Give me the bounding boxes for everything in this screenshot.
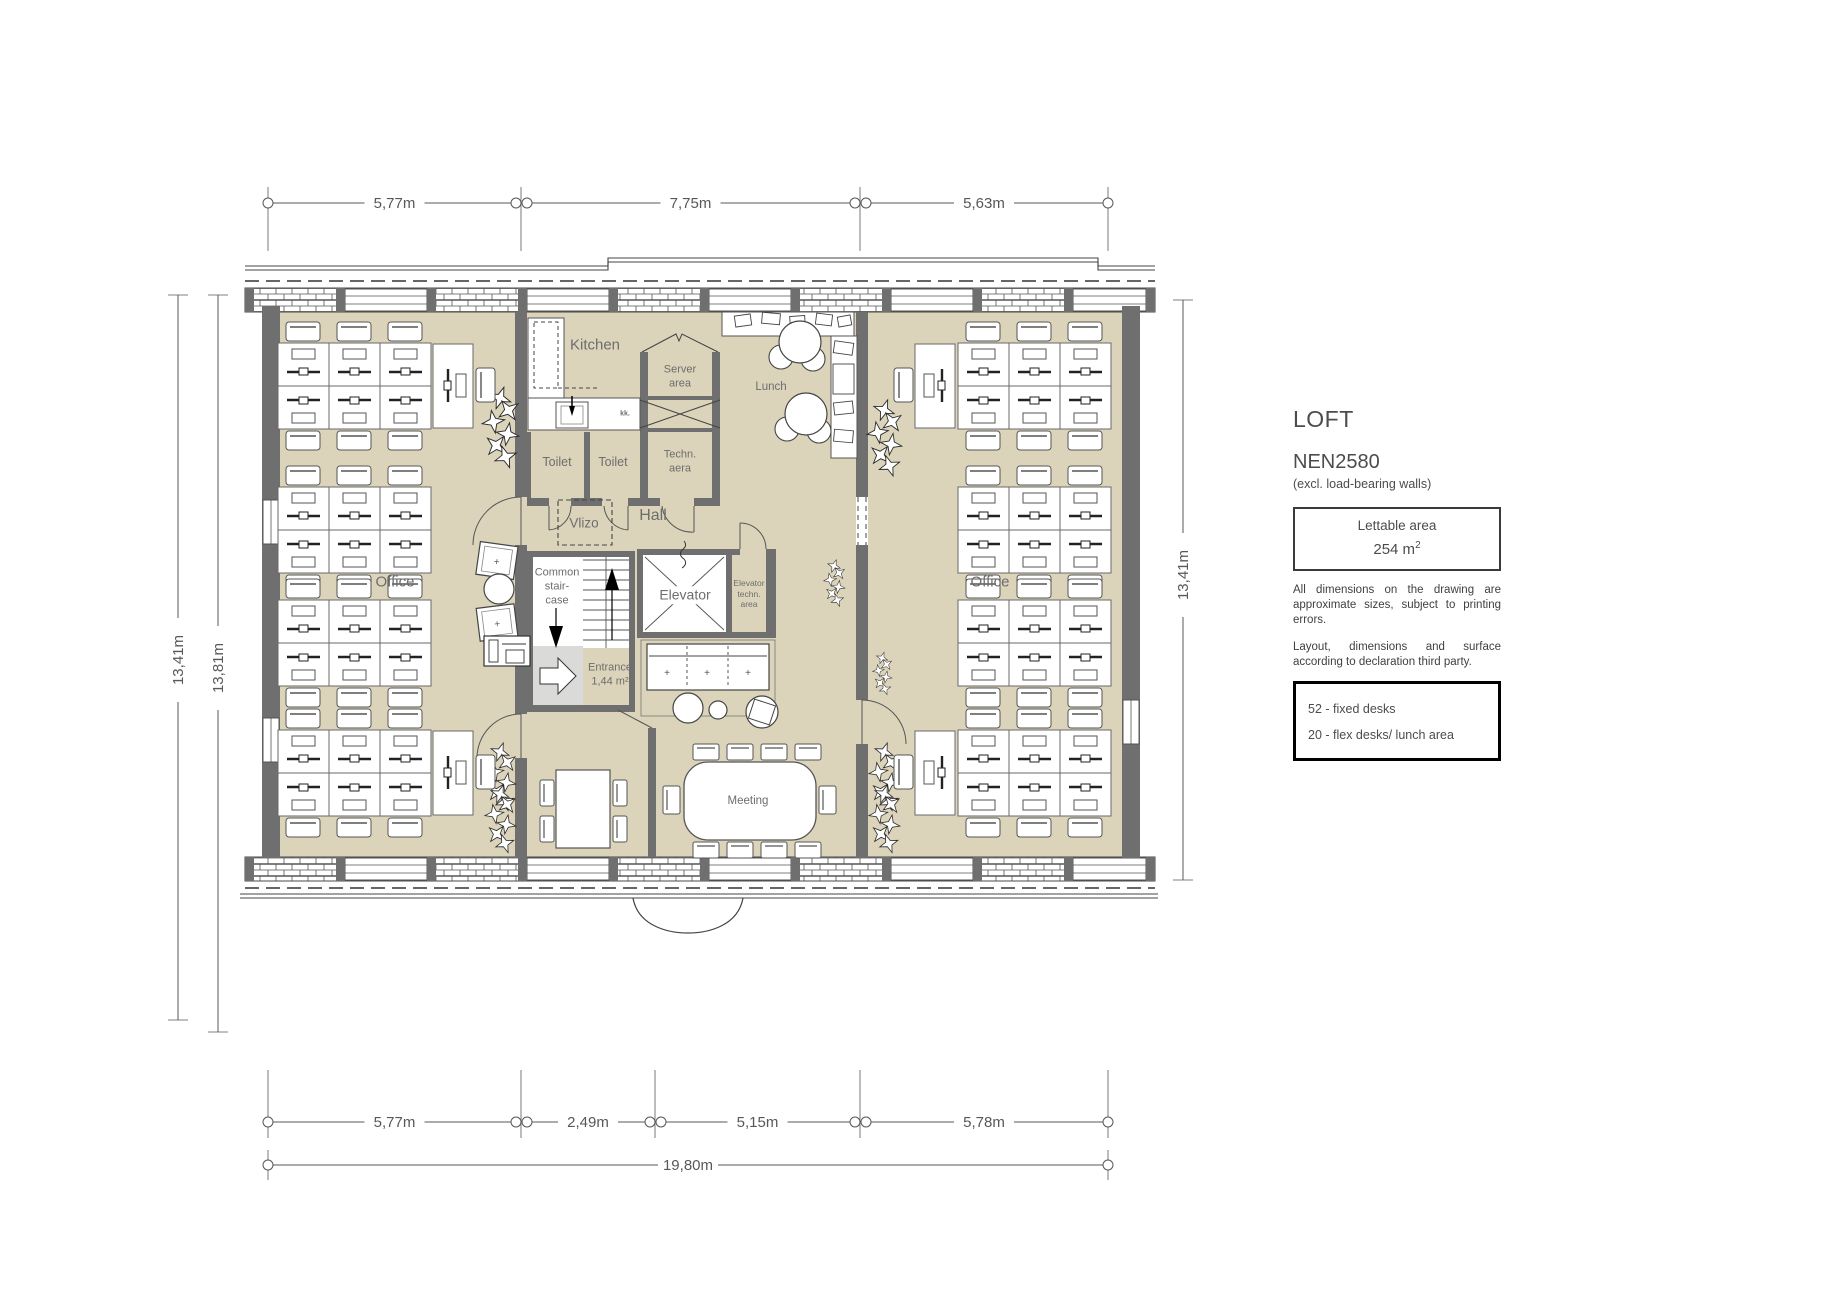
chair: [894, 755, 913, 789]
interior-wall: [637, 555, 643, 638]
desk-keyboard: [394, 670, 417, 680]
desk-keyboard: [1023, 557, 1046, 567]
small-table: [556, 770, 610, 848]
chair: [966, 818, 1000, 837]
desk-monitor-base: [1030, 625, 1039, 632]
wall-pier: [791, 288, 800, 312]
entrance-bay-arc: [633, 898, 743, 933]
desk-monitor-base: [979, 654, 988, 661]
wall-pier: [427, 857, 436, 881]
dim-bottom-label: 5,78m: [963, 1114, 1005, 1131]
dim-top-marker: [1103, 198, 1113, 208]
printer-detail: [489, 640, 498, 662]
desk-keyboard: [292, 413, 315, 423]
dim-top-marker: [861, 198, 871, 208]
desk: [915, 731, 955, 815]
chair: [966, 709, 1000, 728]
dim-bottom-marker: [263, 1117, 273, 1127]
desk-keyboard: [1023, 493, 1046, 503]
wall-pier: [1064, 288, 1073, 312]
wall-pier: [518, 288, 527, 312]
desk-monitor-base: [299, 625, 308, 632]
chair: [1017, 818, 1051, 837]
chair: [894, 368, 913, 402]
desk-monitor-base: [938, 381, 945, 390]
dim-bottom-marker: [522, 1117, 532, 1127]
chair: [286, 431, 320, 450]
chair: [1017, 431, 1051, 450]
desk-keyboard: [394, 493, 417, 503]
desk-keyboard: [343, 800, 366, 810]
desk-keyboard: [394, 557, 417, 567]
desk-keyboard: [343, 670, 366, 680]
desk-monitor-base: [299, 541, 308, 548]
counter-item: [833, 341, 853, 356]
lettable-value-sup: 2: [1415, 540, 1421, 551]
desk-monitor-base: [1081, 784, 1090, 791]
wall-pier: [700, 288, 709, 312]
chair: [1017, 579, 1051, 598]
floor-plan-drawing: +++++5,77m7,75m5,63m5,77m2,49m5,15m5,78m…: [0, 0, 1841, 1294]
chair: [966, 322, 1000, 341]
desk-keyboard: [1023, 413, 1046, 423]
interior-wall: [515, 703, 527, 714]
interior-wall: [856, 312, 868, 497]
dim-left-inner-label: 13,81m: [210, 643, 227, 693]
plus-mark: +: [664, 668, 670, 679]
desk-keyboard: [292, 800, 315, 810]
chair: [795, 842, 821, 858]
interior-wall: [527, 498, 549, 506]
chair: [286, 579, 320, 598]
interior-wall: [856, 545, 868, 700]
wall-pier: [973, 857, 982, 881]
desk-keyboard: [343, 413, 366, 423]
chair: [337, 431, 371, 450]
desk-keyboard: [394, 606, 417, 616]
wall-pier: [973, 288, 982, 312]
desk-monitor-base: [299, 755, 308, 762]
dim-overall-marker: [263, 1160, 273, 1170]
chair: [1068, 818, 1102, 837]
chair: [337, 688, 371, 707]
chair: [693, 842, 719, 858]
desk-monitor-base: [401, 512, 410, 519]
interior-wall: [571, 498, 602, 506]
desk-monitor-base: [1030, 755, 1039, 762]
desk-monitor-base: [1081, 755, 1090, 762]
desk-monitor-base: [1030, 541, 1039, 548]
wall-pier: [882, 857, 891, 881]
chair: [337, 818, 371, 837]
desk-keyboard: [394, 800, 417, 810]
chair: [1017, 709, 1051, 728]
desk-monitor-base: [979, 755, 988, 762]
facade-window: [345, 289, 427, 311]
chair: [1068, 579, 1102, 598]
dim-top-marker: [263, 198, 273, 208]
disclaimer-1: All dimensions on the drawing are approx…: [1293, 583, 1501, 629]
chair: [1017, 322, 1051, 341]
chair: [1017, 466, 1051, 485]
desk-keyboard: [394, 736, 417, 746]
chair: [966, 688, 1000, 707]
chair: [286, 466, 320, 485]
facade-window: [891, 858, 973, 880]
desk-monitor-base: [1081, 541, 1090, 548]
facade-window: [891, 289, 973, 311]
lounge-table: [484, 574, 514, 604]
dim-bottom-marker: [645, 1117, 655, 1127]
dim-top-marker: [511, 198, 521, 208]
desk-monitor-base: [979, 541, 988, 548]
desk-monitor-base: [979, 397, 988, 404]
desk-keyboard: [456, 374, 466, 397]
desk-keyboard: [1023, 670, 1046, 680]
wall-pier: [336, 857, 345, 881]
counter-item: [815, 313, 832, 326]
flex-desks-line: 20 - flex desks/ lunch area: [1308, 728, 1486, 742]
desk-monitor-base: [938, 768, 945, 777]
desk-keyboard: [292, 557, 315, 567]
wall-pier: [609, 857, 618, 881]
counter-item: [833, 401, 853, 415]
dim-left-outer-label: 13,41m: [170, 635, 187, 685]
dim-bottom-label: 5,15m: [737, 1114, 779, 1131]
interior-wall: [712, 352, 720, 498]
desk-keyboard: [924, 374, 934, 397]
chair: [286, 688, 320, 707]
interior-wall: [527, 432, 531, 498]
desk-keyboard: [1023, 736, 1046, 746]
desk-monitor-base: [350, 784, 359, 791]
interior-wall: [694, 498, 720, 506]
desk-keyboard: [292, 736, 315, 746]
desk-monitor-base: [401, 541, 410, 548]
desk-monitor-base: [1081, 368, 1090, 375]
desk-monitor-base: [1030, 784, 1039, 791]
dim-overall-label: 19,80m: [663, 1157, 713, 1174]
interior-wall: [726, 555, 732, 638]
desk: [915, 344, 955, 428]
right-wall: [1122, 306, 1140, 858]
chair: [286, 818, 320, 837]
desk-monitor-base: [1081, 512, 1090, 519]
fixed-desks-line: 52 - fixed desks: [1308, 702, 1486, 716]
desk-keyboard: [1074, 670, 1097, 680]
dim-bottom-label: 5,77m: [374, 1114, 416, 1131]
desk: [433, 344, 473, 428]
chair: [663, 786, 680, 814]
desk-monitor-base: [444, 768, 451, 777]
dim-top-marker: [850, 198, 860, 208]
chair: [693, 744, 719, 760]
desk-monitor-base: [401, 625, 410, 632]
plus-mark: +: [704, 668, 710, 679]
desk-keyboard: [972, 349, 995, 359]
chair: [286, 322, 320, 341]
legend-panel: LOFT NEN2580 (excl. load-bearing walls) …: [1293, 406, 1501, 761]
desk-keyboard: [972, 557, 995, 567]
desk-keyboard: [972, 670, 995, 680]
desk-keyboard: [972, 493, 995, 503]
chair: [388, 579, 422, 598]
chair: [286, 709, 320, 728]
desk-monitor-base: [979, 368, 988, 375]
desk-keyboard: [1074, 413, 1097, 423]
chair: [761, 842, 787, 858]
chair: [761, 744, 787, 760]
legend-title: LOFT: [1293, 406, 1501, 433]
desk-monitor-base: [1081, 397, 1090, 404]
desk-monitor-base: [1030, 368, 1039, 375]
facade-window: [1073, 858, 1146, 880]
chair: [1068, 466, 1102, 485]
disclaimer-2: Layout, dimensions and surface according…: [1293, 640, 1501, 670]
desk-keyboard: [1023, 349, 1046, 359]
wall-pier: [700, 857, 709, 881]
chair: [819, 786, 836, 814]
dim-bottom-label: 2,49m: [567, 1114, 609, 1131]
interior-wall: [640, 428, 720, 432]
lunch-table: [779, 321, 821, 363]
chair: [1068, 322, 1102, 341]
coffee-table: [673, 693, 703, 723]
interior-wall: [640, 396, 720, 400]
desk-monitor-base: [299, 368, 308, 375]
chair: [388, 818, 422, 837]
counter-item: [734, 314, 751, 327]
chair: [337, 579, 371, 598]
desk-monitor-base: [979, 784, 988, 791]
desk-keyboard: [343, 606, 366, 616]
desk-monitor-base: [401, 755, 410, 762]
dim-top-label: 7,75m: [670, 195, 712, 212]
desk-keyboard: [1074, 349, 1097, 359]
interior-wall: [629, 557, 635, 705]
wall-pier: [245, 857, 254, 881]
chair: [966, 431, 1000, 450]
desk-keyboard: [972, 413, 995, 423]
chair: [966, 579, 1000, 598]
desk-keyboard: [972, 606, 995, 616]
sofa: [647, 644, 769, 690]
facade-window: [527, 289, 609, 311]
printer-detail: [506, 650, 524, 663]
desk-keyboard: [394, 349, 417, 359]
dim-overall-marker: [1103, 1160, 1113, 1170]
legend-note: (excl. load-bearing walls): [1293, 477, 1501, 491]
desk-count-box: 52 - fixed desks 20 - flex desks/ lunch …: [1293, 681, 1501, 761]
dim-top-label: 5,63m: [963, 195, 1005, 212]
interior-wall: [628, 498, 640, 506]
desk-monitor-base: [401, 784, 410, 791]
chair: [727, 744, 753, 760]
desk-keyboard: [343, 736, 366, 746]
counter-item: [834, 429, 854, 443]
chair: [727, 842, 753, 858]
interior-wall: [515, 758, 527, 858]
facade-window: [709, 858, 791, 880]
desk-keyboard: [456, 761, 466, 784]
interior-wall: [640, 352, 648, 498]
dim-bottom-marker: [861, 1117, 871, 1127]
desk: [433, 731, 473, 815]
desk-keyboard: [292, 493, 315, 503]
desk-keyboard: [343, 493, 366, 503]
desk-monitor-base: [299, 512, 308, 519]
interior-wall: [640, 498, 660, 506]
lettable-area-box: Lettable area 254 m2: [1293, 507, 1501, 571]
chair: [613, 816, 627, 842]
desk-monitor-base: [444, 381, 451, 390]
interior-wall: [766, 549, 776, 555]
desk-monitor-base: [299, 784, 308, 791]
desk-keyboard: [924, 761, 934, 784]
floor-plan: +++++5,77m7,75m5,63m5,77m2,49m5,15m5,78m…: [0, 0, 1841, 1294]
facade-window: [527, 858, 609, 880]
desk-monitor-base: [401, 368, 410, 375]
desk-monitor-base: [1030, 397, 1039, 404]
desk-keyboard: [292, 670, 315, 680]
interior-wall: [584, 432, 590, 498]
chair: [337, 322, 371, 341]
left-wall: [262, 306, 280, 858]
counter-item: [837, 315, 852, 327]
desk-monitor-base: [299, 654, 308, 661]
wall-pier: [791, 857, 800, 881]
meeting-table: [684, 762, 816, 840]
chair: [476, 368, 495, 402]
desk-monitor-base: [350, 541, 359, 548]
dim-right-label: 13,41m: [1175, 550, 1192, 600]
interior-wall: [637, 549, 740, 555]
facade-window: [709, 289, 791, 311]
legend-subtitle: NEN2580: [1293, 451, 1501, 474]
dim-bottom-marker: [511, 1117, 521, 1127]
counter-item: [833, 364, 854, 394]
interior-wall: [637, 632, 776, 638]
lunch-table: [785, 393, 827, 435]
dim-top-label: 5,77m: [374, 195, 416, 212]
facade-window: [345, 858, 427, 880]
desk-monitor-base: [350, 654, 359, 661]
interior-wall: [766, 555, 776, 638]
interior-wall: [856, 744, 868, 858]
dim-bottom-marker: [850, 1117, 860, 1127]
lettable-value-text: 254 m: [1373, 541, 1415, 558]
desk-monitor-base: [350, 755, 359, 762]
interior-wall: [527, 551, 635, 557]
chair: [388, 322, 422, 341]
desk-keyboard: [972, 800, 995, 810]
wall-pier: [1064, 857, 1073, 881]
desk-keyboard: [343, 349, 366, 359]
desk-monitor-base: [1081, 654, 1090, 661]
desk-monitor-base: [1030, 654, 1039, 661]
chair: [388, 688, 422, 707]
wall-pier: [1146, 288, 1155, 312]
lettable-area-label: Lettable area: [1295, 518, 1499, 533]
desk-keyboard: [1074, 606, 1097, 616]
desk-monitor-base: [350, 512, 359, 519]
desk-monitor-base: [1081, 625, 1090, 632]
chair: [476, 755, 495, 789]
chair: [1068, 709, 1102, 728]
wall-pier: [336, 288, 345, 312]
dim-top-marker: [522, 198, 532, 208]
chair: [795, 744, 821, 760]
desk-monitor-base: [1030, 512, 1039, 519]
desk-monitor-base: [350, 397, 359, 404]
desk-keyboard: [343, 557, 366, 567]
chair: [388, 466, 422, 485]
desk-keyboard: [1074, 736, 1097, 746]
desk-monitor-base: [401, 654, 410, 661]
dim-bottom-marker: [656, 1117, 666, 1127]
desk-keyboard: [1023, 800, 1046, 810]
desk-keyboard: [1023, 606, 1046, 616]
desk-monitor-base: [350, 625, 359, 632]
chair: [540, 780, 554, 806]
wall-pier: [518, 857, 527, 881]
interior-wall: [527, 557, 533, 705]
chair: [966, 466, 1000, 485]
coffee-table: [709, 701, 727, 719]
chair: [540, 816, 554, 842]
interior-wall: [648, 728, 656, 857]
desk-monitor-base: [401, 397, 410, 404]
desk-keyboard: [1074, 800, 1097, 810]
wall-pier: [427, 288, 436, 312]
desk-keyboard: [292, 606, 315, 616]
chair: [337, 466, 371, 485]
wall-pier: [882, 288, 891, 312]
counter-item: [762, 312, 781, 325]
chair: [1017, 688, 1051, 707]
lettable-area-value: 254 m2: [1295, 540, 1499, 558]
chair: [388, 709, 422, 728]
chair: [337, 709, 371, 728]
chair: [613, 780, 627, 806]
chair: [1068, 431, 1102, 450]
desk-keyboard: [972, 736, 995, 746]
desk-monitor-base: [350, 368, 359, 375]
chair: [388, 431, 422, 450]
desk-keyboard: [394, 413, 417, 423]
desk-monitor-base: [979, 625, 988, 632]
desk-keyboard: [292, 349, 315, 359]
dim-bottom-marker: [1103, 1117, 1113, 1127]
wall-pier: [609, 288, 618, 312]
desk-keyboard: [1074, 557, 1097, 567]
wall-pier: [245, 288, 254, 312]
desk-keyboard: [1074, 493, 1097, 503]
plus-mark: +: [745, 668, 751, 679]
desk-monitor-base: [299, 397, 308, 404]
desk-monitor-base: [979, 512, 988, 519]
wall-pier: [1146, 857, 1155, 881]
chair: [1068, 688, 1102, 707]
